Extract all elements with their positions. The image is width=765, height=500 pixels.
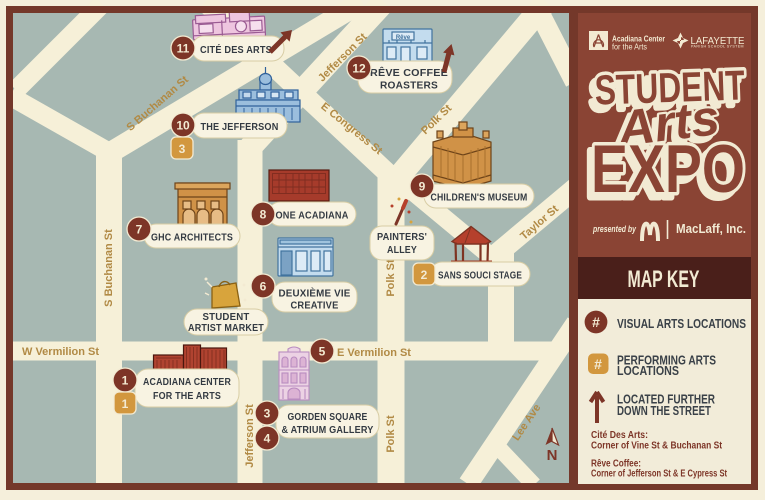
- svg-text:Corner of Jefferson St & E Cyp: Corner of Jefferson St & E Cypress St: [591, 469, 728, 480]
- svg-text:Corner of Vine St & Buchanan S: Corner of Vine St & Buchanan St: [591, 441, 723, 452]
- svg-text:1: 1: [122, 374, 129, 388]
- svg-text:S Buchanan St: S Buchanan St: [103, 229, 115, 307]
- svg-text:ALLEY: ALLEY: [387, 245, 417, 256]
- svg-text:PARISH SCHOOL SYSTEM: PARISH SCHOOL SYSTEM: [691, 45, 744, 49]
- svg-text:5: 5: [319, 345, 326, 359]
- svg-text:GORDEN SQUARE: GORDEN SQUARE: [288, 412, 368, 423]
- svg-text:EXPO: EXPO: [591, 131, 745, 207]
- svg-text:THE JEFFERSON: THE JEFFERSON: [201, 122, 279, 133]
- svg-text:3: 3: [179, 142, 186, 156]
- svg-text:#: #: [594, 356, 602, 372]
- svg-text:GHC ARCHITECTS: GHC ARCHITECTS: [151, 233, 233, 244]
- svg-text:Polk St: Polk St: [385, 415, 397, 453]
- svg-text:Jefferson St: Jefferson St: [244, 404, 256, 468]
- svg-text:W Vermilion St: W Vermilion St: [22, 346, 99, 358]
- svg-text:12: 12: [352, 62, 366, 76]
- svg-text:N: N: [547, 447, 558, 464]
- svg-text:E Vermilion St: E Vermilion St: [337, 347, 411, 359]
- svg-text:RÊVE COFFEE: RÊVE COFFEE: [370, 66, 448, 79]
- svg-text:2: 2: [421, 268, 428, 282]
- svg-text:PAINTERS': PAINTERS': [377, 232, 427, 243]
- svg-text:1: 1: [122, 397, 129, 411]
- svg-text:CREATIVE: CREATIVE: [291, 301, 339, 312]
- svg-text:MAP KEY: MAP KEY: [628, 266, 700, 293]
- svg-text:ONE ACADIANA: ONE ACADIANA: [276, 211, 349, 222]
- svg-text:Rêve: Rêve: [396, 35, 411, 41]
- svg-text:7: 7: [136, 223, 143, 237]
- svg-text:ARTIST MARKET: ARTIST MARKET: [188, 323, 264, 334]
- svg-text:Polk St: Polk St: [385, 259, 397, 297]
- svg-text:8: 8: [260, 208, 267, 222]
- svg-text:& ATRIUM GALLERY: & ATRIUM GALLERY: [282, 425, 374, 436]
- svg-text:ROASTERS: ROASTERS: [380, 81, 438, 92]
- svg-text:VISUAL ARTS LOCATIONS: VISUAL ARTS LOCATIONS: [617, 316, 746, 331]
- svg-text:#: #: [592, 314, 600, 330]
- svg-text:DOWN THE STREET: DOWN THE STREET: [617, 403, 711, 418]
- svg-text:11: 11: [177, 42, 190, 56]
- svg-text:Cité Des Arts:: Cité Des Arts:: [591, 430, 648, 441]
- svg-text:SANS SOUCI STAGE: SANS SOUCI STAGE: [438, 271, 522, 282]
- svg-text:10: 10: [176, 119, 190, 133]
- svg-text:CITÉ DES ARTS: CITÉ DES ARTS: [200, 43, 272, 56]
- svg-text:DEUXIÈME VIE: DEUXIÈME VIE: [279, 287, 351, 300]
- svg-text:LOCATIONS: LOCATIONS: [617, 363, 679, 378]
- svg-text:4: 4: [264, 432, 271, 446]
- svg-text:6: 6: [260, 280, 267, 294]
- svg-text:FOR THE ARTS: FOR THE ARTS: [153, 391, 221, 402]
- svg-text:9: 9: [419, 180, 426, 194]
- svg-text:MacLaff, Inc.: MacLaff, Inc.: [676, 222, 746, 236]
- svg-text:STUDENT: STUDENT: [203, 312, 250, 323]
- svg-text:presented by: presented by: [592, 224, 637, 234]
- svg-text:ACADIANA CENTER: ACADIANA CENTER: [143, 377, 232, 388]
- svg-text:CHILDREN'S MUSEUM: CHILDREN'S MUSEUM: [431, 193, 528, 204]
- svg-text:3: 3: [264, 407, 271, 421]
- svg-text:for the Arts: for the Arts: [612, 43, 647, 52]
